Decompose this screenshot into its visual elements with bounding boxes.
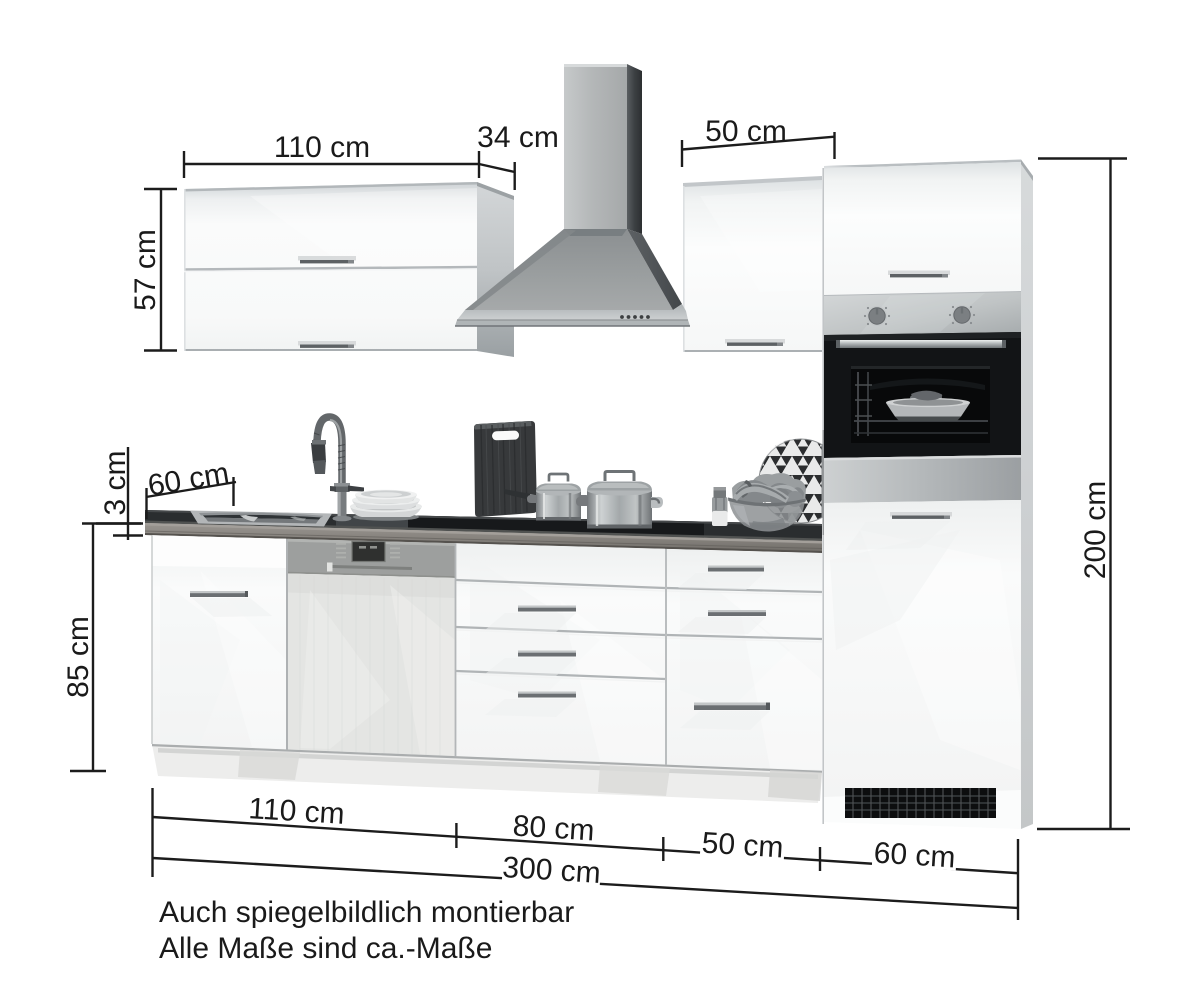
svg-text:57 cm: 57 cm bbox=[129, 229, 162, 311]
svg-text:110 cm: 110 cm bbox=[274, 131, 370, 164]
svg-text:Alle Maße sind ca.-Maße: Alle Maße sind ca.-Maße bbox=[159, 932, 492, 965]
svg-text:50 cm: 50 cm bbox=[701, 827, 785, 865]
svg-text:60 cm: 60 cm bbox=[873, 837, 957, 875]
svg-text:50 cm: 50 cm bbox=[705, 115, 787, 148]
svg-text:80 cm: 80 cm bbox=[512, 810, 596, 848]
svg-text:85 cm: 85 cm bbox=[62, 616, 95, 698]
svg-text:34 cm: 34 cm bbox=[477, 121, 559, 154]
svg-text:3 cm: 3 cm bbox=[99, 450, 132, 515]
svg-text:110 cm: 110 cm bbox=[248, 792, 346, 831]
svg-text:Auch spiegelbildlich montierba: Auch spiegelbildlich montierbar bbox=[159, 896, 574, 929]
svg-text:200 cm: 200 cm bbox=[1079, 481, 1112, 579]
svg-text:300 cm: 300 cm bbox=[501, 851, 601, 890]
